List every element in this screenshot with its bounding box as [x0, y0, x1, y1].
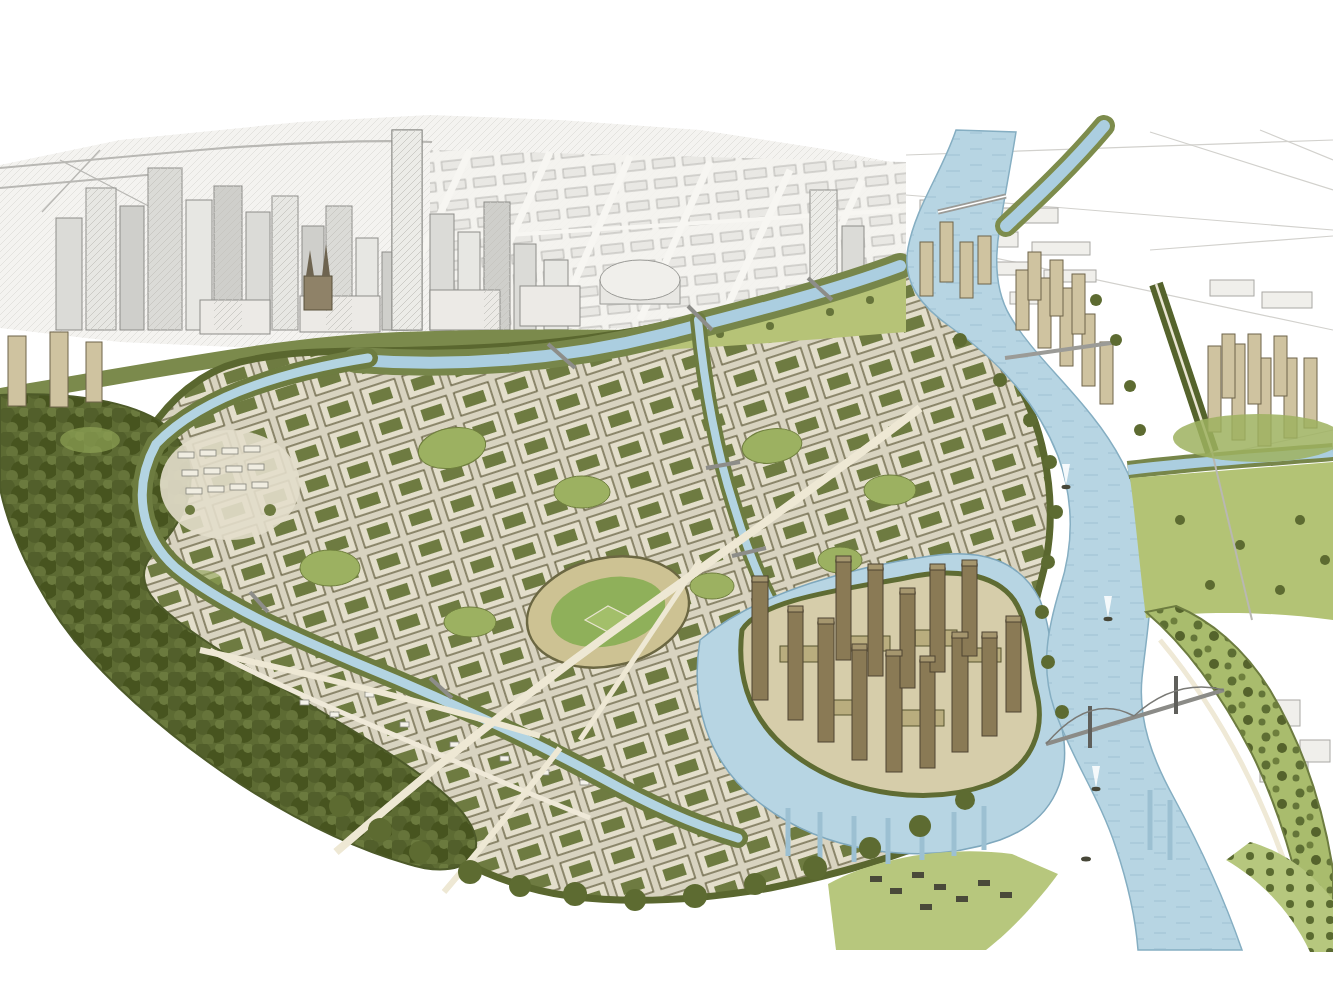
- arena-dome: [600, 260, 680, 304]
- city-illustration: [0, 0, 1333, 1000]
- slide: URBANSIM: [0, 0, 1333, 1000]
- village: [160, 430, 300, 540]
